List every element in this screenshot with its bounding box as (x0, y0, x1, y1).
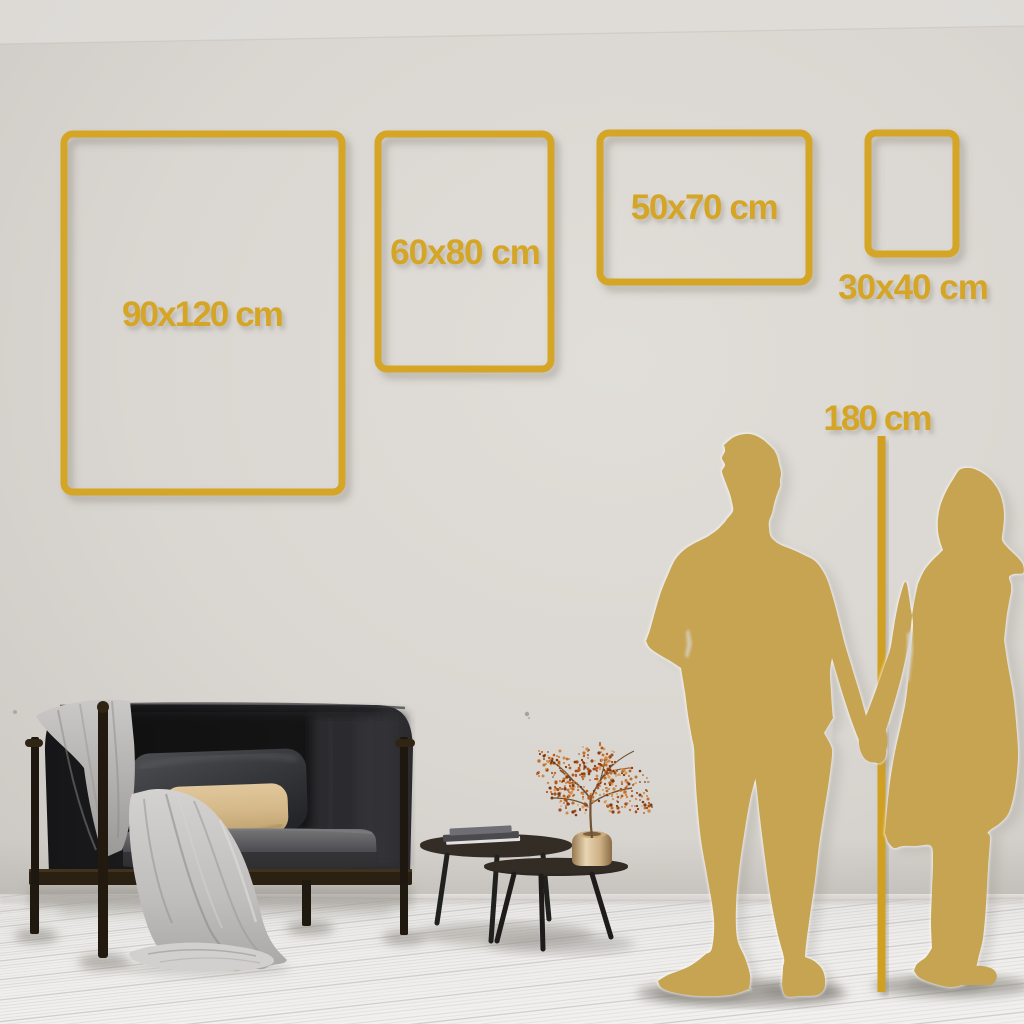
svg-text:90x120 cm: 90x120 cm (122, 295, 282, 334)
svg-text:50x70 cm: 50x70 cm (631, 188, 777, 227)
svg-text:60x80 cm: 60x80 cm (390, 233, 540, 272)
svg-text:180 cm: 180 cm (823, 399, 930, 438)
svg-text:30x40 cm: 30x40 cm (838, 268, 988, 307)
